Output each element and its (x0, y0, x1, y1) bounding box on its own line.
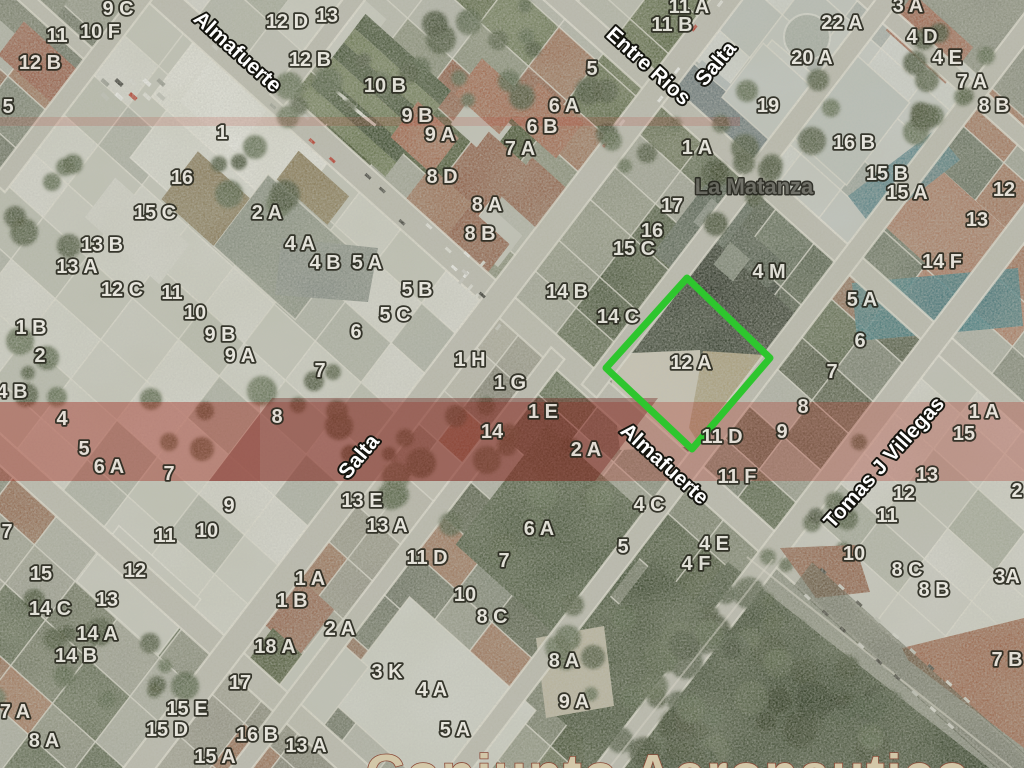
svg-text:6 A: 6 A (549, 95, 579, 117)
svg-text:12 A: 12 A (670, 352, 712, 374)
svg-text:14 C: 14 C (29, 598, 71, 620)
svg-text:9 A: 9 A (425, 124, 455, 146)
svg-text:13: 13 (316, 5, 338, 27)
svg-text:7: 7 (1, 521, 12, 543)
svg-text:13: 13 (966, 209, 988, 231)
svg-text:2 A: 2 A (325, 618, 355, 640)
svg-text:2 A: 2 A (252, 202, 282, 224)
svg-text:19: 19 (757, 95, 779, 117)
svg-text:7 A: 7 A (0, 701, 30, 723)
svg-text:10 B: 10 B (364, 75, 406, 97)
svg-text:11 D: 11 D (406, 547, 447, 569)
svg-text:Conjunto Aeronautico: Conjunto Aeronautico (366, 744, 971, 768)
svg-text:14 B: 14 B (55, 645, 97, 667)
svg-text:5: 5 (78, 438, 89, 460)
svg-text:3A: 3A (994, 566, 1020, 588)
svg-text:18 A: 18 A (254, 636, 296, 658)
svg-text:8 B: 8 B (464, 223, 495, 245)
svg-text:12 B: 12 B (289, 49, 331, 71)
svg-text:La Matanza: La Matanza (695, 174, 814, 199)
svg-text:15 C: 15 C (613, 238, 655, 260)
svg-text:16: 16 (171, 167, 193, 189)
svg-text:9 A: 9 A (559, 691, 589, 713)
svg-text:13: 13 (916, 464, 938, 486)
svg-text:7: 7 (826, 361, 837, 383)
svg-text:9 C: 9 C (102, 0, 133, 20)
svg-text:12 C: 12 C (101, 279, 143, 301)
svg-text:17: 17 (229, 672, 251, 694)
svg-text:13 A: 13 A (285, 735, 327, 757)
svg-text:4: 4 (56, 408, 68, 430)
svg-text:4 B: 4 B (309, 252, 340, 274)
svg-text:7: 7 (163, 463, 174, 485)
svg-text:6 B: 6 B (526, 116, 557, 138)
svg-text:4 B: 4 B (0, 381, 28, 403)
svg-text:5 B: 5 B (401, 279, 432, 301)
svg-text:9: 9 (776, 421, 787, 443)
svg-text:15 A: 15 A (194, 746, 236, 768)
svg-text:11 B: 11 B (651, 14, 692, 36)
svg-text:14 C: 14 C (597, 306, 639, 328)
svg-text:8: 8 (797, 396, 808, 418)
svg-text:6 A: 6 A (524, 518, 554, 540)
svg-text:4 F: 4 F (682, 553, 711, 575)
svg-text:8 C: 8 C (476, 606, 507, 628)
svg-text:7 A: 7 A (505, 138, 535, 160)
svg-text:7: 7 (498, 550, 509, 572)
svg-text:10: 10 (454, 584, 476, 606)
svg-text:9: 9 (223, 495, 234, 517)
svg-text:1 B: 1 B (15, 317, 46, 339)
svg-text:12 B: 12 B (19, 52, 61, 74)
svg-text:11: 11 (876, 505, 897, 527)
svg-text:6 A: 6 A (94, 456, 124, 478)
svg-text:5: 5 (2, 96, 13, 118)
svg-text:14 B: 14 B (546, 281, 588, 303)
svg-text:1 B: 1 B (276, 590, 307, 612)
svg-text:6: 6 (854, 330, 865, 352)
svg-text:9 B: 9 B (204, 324, 235, 346)
svg-text:5 C: 5 C (379, 304, 410, 326)
svg-text:4 E: 4 E (932, 47, 962, 69)
svg-text:2: 2 (1011, 480, 1022, 502)
svg-text:16 B: 16 B (833, 132, 875, 154)
svg-text:13 A: 13 A (366, 515, 408, 537)
svg-text:13 E: 13 E (341, 490, 382, 512)
svg-text:12: 12 (893, 483, 915, 505)
svg-text:17: 17 (661, 195, 683, 217)
svg-text:8 C: 8 C (891, 559, 922, 581)
svg-text:16 B: 16 B (236, 724, 278, 746)
svg-text:8 B: 8 B (978, 95, 1009, 117)
svg-text:7 B: 7 B (991, 649, 1022, 671)
svg-text:8 A: 8 A (29, 730, 59, 752)
svg-text:5: 5 (617, 536, 628, 558)
svg-text:14 A: 14 A (76, 623, 118, 645)
svg-text:1 A: 1 A (682, 137, 712, 159)
svg-text:11: 11 (46, 25, 67, 47)
svg-text:1 A: 1 A (969, 401, 999, 423)
svg-text:3 A: 3 A (893, 0, 923, 17)
svg-text:11: 11 (161, 282, 182, 304)
svg-text:15 E: 15 E (166, 698, 207, 720)
svg-text:11 F: 11 F (718, 466, 757, 488)
svg-text:13: 13 (96, 589, 118, 611)
svg-text:12 D: 12 D (266, 11, 308, 33)
svg-text:8 A: 8 A (472, 194, 502, 216)
svg-text:1 G: 1 G (494, 372, 526, 394)
svg-text:8 D: 8 D (426, 166, 457, 188)
svg-text:9 A: 9 A (225, 345, 255, 367)
svg-text:4 C: 4 C (633, 494, 664, 516)
svg-text:14: 14 (481, 421, 504, 443)
svg-text:5 A: 5 A (352, 252, 382, 274)
svg-text:1 H: 1 H (454, 349, 485, 371)
svg-text:2: 2 (34, 345, 45, 367)
svg-text:1: 1 (216, 122, 227, 144)
svg-text:10 F: 10 F (80, 21, 120, 43)
svg-text:15 C: 15 C (134, 202, 176, 224)
svg-text:10: 10 (196, 520, 218, 542)
svg-text:11 D: 11 D (701, 426, 742, 448)
svg-text:2 A: 2 A (571, 439, 601, 461)
svg-text:12: 12 (993, 179, 1015, 201)
svg-text:4 D: 4 D (906, 26, 937, 48)
svg-text:13 B: 13 B (81, 234, 123, 256)
svg-text:12: 12 (124, 560, 146, 582)
svg-text:5 A: 5 A (847, 289, 877, 311)
svg-text:4 A: 4 A (417, 679, 447, 701)
svg-text:15: 15 (30, 563, 52, 585)
svg-text:11: 11 (154, 525, 175, 547)
svg-text:5 A: 5 A (440, 719, 470, 741)
svg-text:15: 15 (953, 423, 975, 445)
svg-text:5: 5 (586, 58, 597, 80)
svg-text:7: 7 (314, 360, 325, 382)
svg-text:14 F: 14 F (922, 251, 962, 273)
svg-text:15 D: 15 D (146, 719, 188, 741)
svg-text:4 M: 4 M (752, 261, 785, 283)
svg-text:20 A: 20 A (791, 47, 833, 69)
svg-text:4 E: 4 E (699, 533, 729, 555)
svg-text:6: 6 (350, 321, 361, 343)
svg-text:15 A: 15 A (886, 182, 928, 204)
svg-text:1 E: 1 E (528, 401, 558, 423)
svg-text:8 A: 8 A (549, 650, 579, 672)
svg-text:8: 8 (271, 406, 282, 428)
svg-text:7 A: 7 A (957, 71, 987, 93)
svg-text:3 K: 3 K (371, 661, 403, 683)
svg-text:8 B: 8 B (918, 579, 949, 601)
svg-text:10: 10 (184, 302, 206, 324)
svg-text:10: 10 (843, 543, 865, 565)
svg-text:13 A: 13 A (56, 256, 98, 278)
svg-text:1 A: 1 A (295, 568, 325, 590)
svg-text:22 A: 22 A (821, 12, 863, 34)
